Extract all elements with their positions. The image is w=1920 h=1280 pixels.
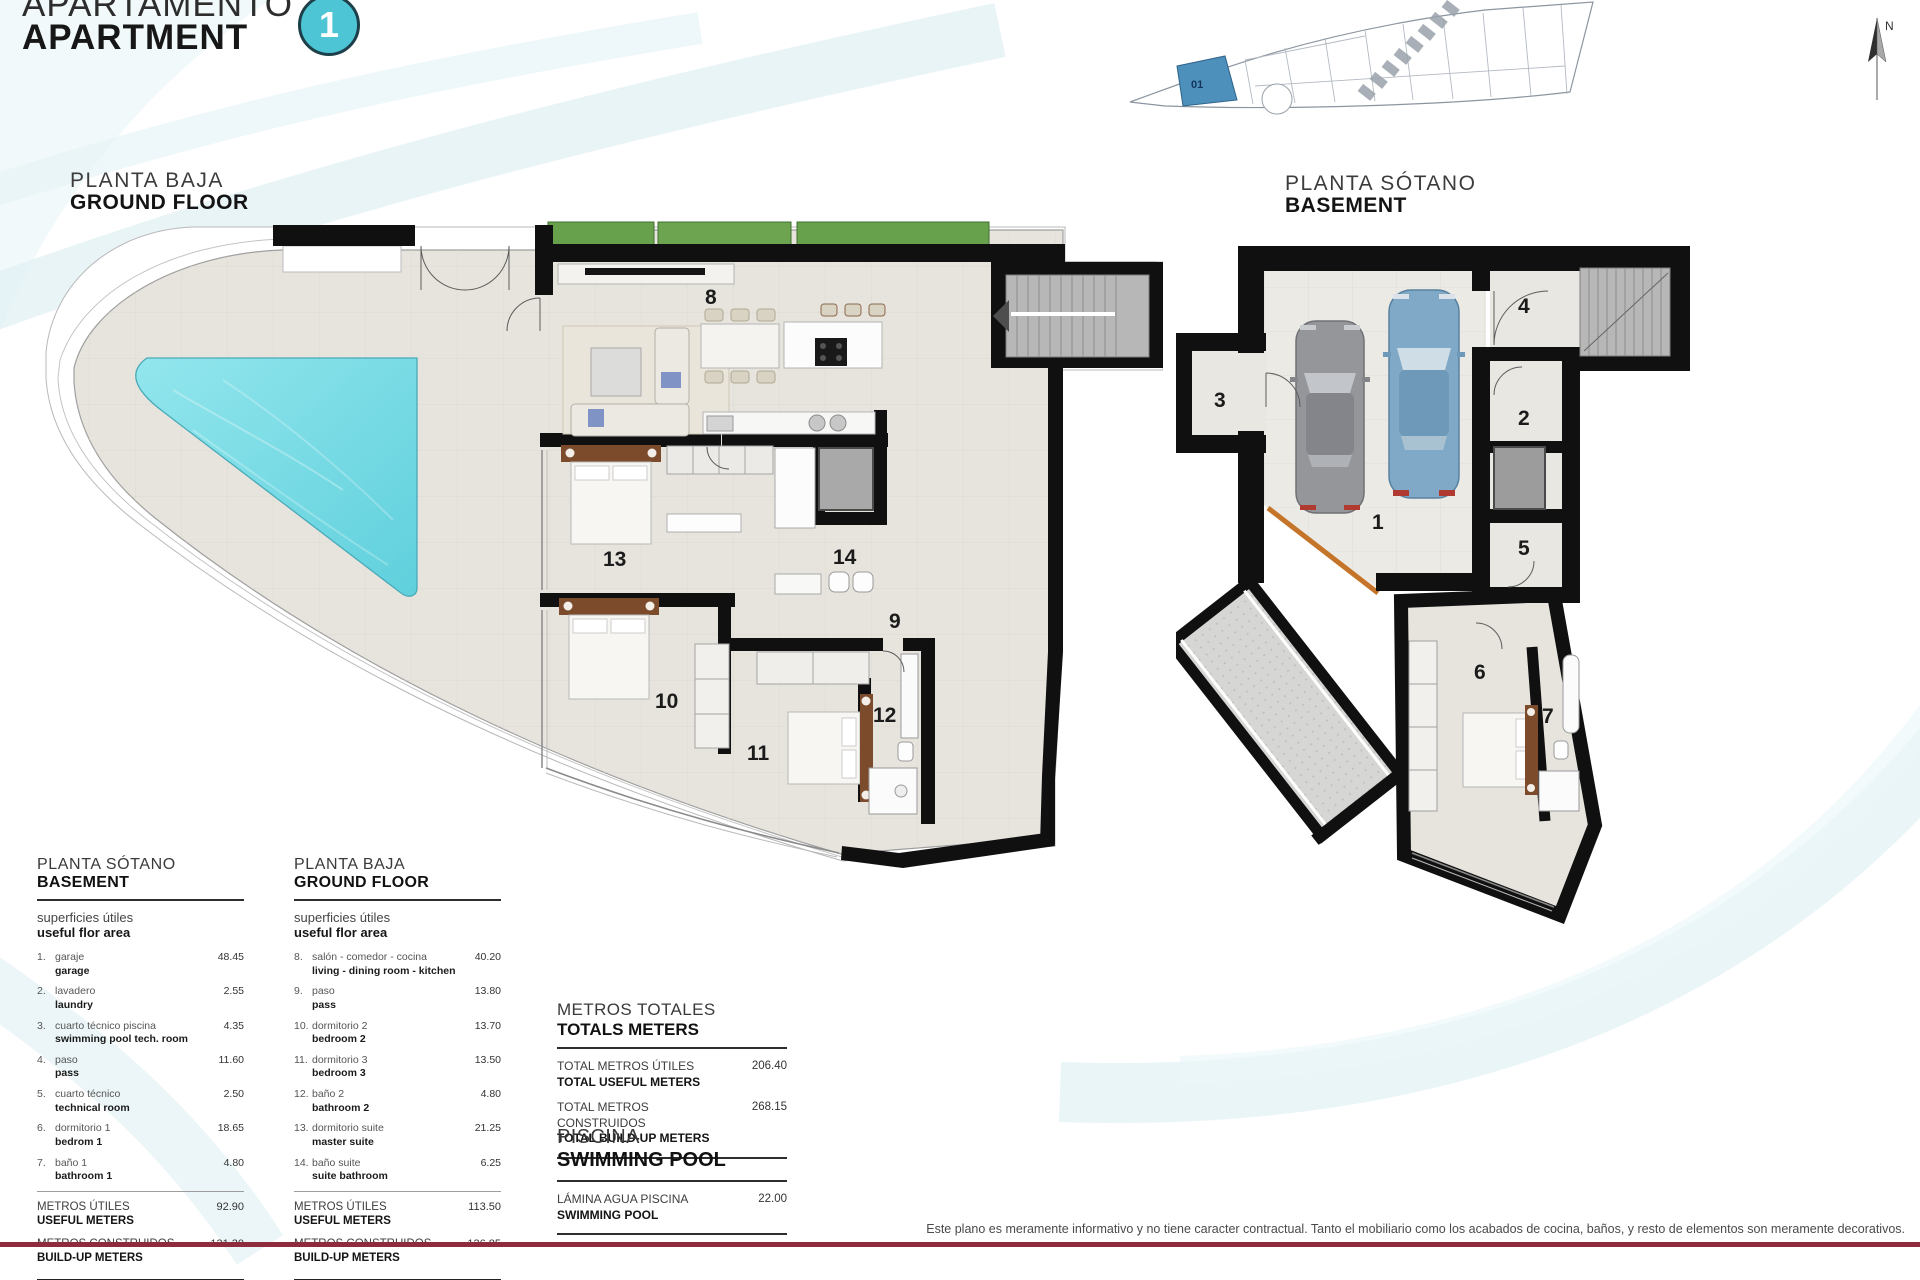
legend-row: 10.dormitorio 2bedroom 213.70 bbox=[294, 1020, 501, 1047]
staircase bbox=[1580, 268, 1670, 356]
row-en: bathroom 2 bbox=[312, 1102, 459, 1116]
room-number-7: 7 bbox=[1542, 705, 1554, 729]
elevator bbox=[1494, 447, 1545, 509]
row-value: 48.45 bbox=[202, 951, 244, 978]
row-es: baño 1 bbox=[55, 1157, 87, 1169]
room-number-10: 10 bbox=[655, 690, 678, 714]
basement-plan: 1 2 3 4 5 6 7 bbox=[1176, 243, 1896, 953]
legend-row: 14.baño suitesuite bathroom6.25 bbox=[294, 1157, 501, 1184]
row-num: 8. bbox=[294, 951, 312, 978]
disclaimer-text: Este plano es meramente informativo y no… bbox=[926, 1222, 1905, 1236]
subtitle-en: useful flor area bbox=[37, 925, 244, 941]
room-number-6: 6 bbox=[1474, 661, 1486, 685]
legend-basement-title-es: PLANTA SÓTANO bbox=[37, 856, 244, 874]
row-en: bedroom 3 bbox=[312, 1067, 459, 1081]
row-value: 2.55 bbox=[202, 985, 244, 1012]
room-number-13: 13 bbox=[603, 548, 626, 572]
row-en: pass bbox=[312, 999, 459, 1013]
row-en: living - dining room - kitchen bbox=[312, 965, 459, 979]
pool-es: LÁMINA AGUA PISCINA bbox=[557, 1192, 688, 1206]
legend-row: 3.cuarto técnico piscinaswimming pool te… bbox=[37, 1020, 244, 1047]
legend-row: 8.salón - comedor - cocinaliving - dinin… bbox=[294, 951, 501, 978]
north-label: N bbox=[1885, 19, 1894, 33]
legend-ground: PLANTA BAJA GROUND FLOOR superficies úti… bbox=[294, 856, 501, 1280]
legend-ground-title-en: GROUND FLOOR bbox=[294, 874, 501, 892]
fridge-icon bbox=[775, 448, 815, 528]
row-num: 10. bbox=[294, 1020, 312, 1047]
total-es: METROS ÚTILES bbox=[37, 1201, 130, 1213]
row-num: 14. bbox=[294, 1157, 312, 1184]
row-num: 12. bbox=[294, 1088, 312, 1115]
row-value: 18.65 bbox=[202, 1122, 244, 1149]
pool-title-es: PISCINA bbox=[557, 1126, 787, 1149]
legend-row: 1.garajegarage48.45 bbox=[37, 951, 244, 978]
legend-row: 13.dormitorio suitemaster suite21.25 bbox=[294, 1122, 501, 1149]
row-value: 2.50 bbox=[202, 1088, 244, 1115]
room3-floor bbox=[1192, 351, 1266, 437]
ground-floor-label: PLANTA BAJA GROUND FLOOR bbox=[70, 170, 249, 214]
room-number-5: 5 bbox=[1518, 537, 1530, 561]
room-number-2: 2 bbox=[1518, 407, 1530, 431]
rule bbox=[557, 1047, 787, 1049]
row-num: 4. bbox=[37, 1054, 55, 1081]
legend-row: 11.dormitorio 3bedroom 313.50 bbox=[294, 1054, 501, 1081]
row-value: 13.80 bbox=[459, 985, 501, 1012]
legend-totals: METROS ÚTILESUSEFUL METERS92.90 METROS C… bbox=[37, 1191, 244, 1280]
brochure-page: APARTAMENTO APARTMENT 1 bbox=[0, 0, 1920, 1280]
totals-title-es: METROS TOTALES bbox=[557, 1000, 787, 1020]
tv-icon bbox=[585, 268, 705, 275]
legend-row: 12.baño 2bathroom 24.80 bbox=[294, 1088, 501, 1115]
site-unit-label: 01 bbox=[1191, 79, 1203, 91]
row-en: bathroom 1 bbox=[55, 1170, 202, 1184]
total-value: 136.85 bbox=[455, 1237, 501, 1266]
row-es: dormitorio suite bbox=[312, 1122, 384, 1134]
row-value: 4.80 bbox=[202, 1157, 244, 1184]
row-es: garaje bbox=[55, 951, 84, 963]
blue-car-icon bbox=[1383, 290, 1465, 498]
subtitle-es: superficies útiles bbox=[37, 910, 244, 926]
subtitle-es: superficies útiles bbox=[294, 910, 501, 926]
total-row: METROS ÚTILESUSEFUL METERS113.50 bbox=[294, 1200, 501, 1229]
row-num: 1. bbox=[37, 951, 55, 978]
totals-row: TOTAL METROS ÚTILESTOTAL USEFUL METERS20… bbox=[557, 1059, 787, 1090]
row-num: 3. bbox=[37, 1020, 55, 1047]
bathtub-icon bbox=[1563, 655, 1579, 733]
row-en: pass bbox=[55, 1067, 202, 1081]
ground-floor-label-es: PLANTA BAJA bbox=[70, 170, 249, 192]
row-es: lavadero bbox=[55, 985, 95, 997]
legend-basement-subtitle: superficies útiles useful flor area bbox=[37, 910, 244, 941]
site-plan-drawing: 01 N bbox=[1125, 0, 1915, 130]
row-num: 7. bbox=[37, 1157, 55, 1184]
row-num: 6. bbox=[37, 1122, 55, 1149]
staircase bbox=[993, 275, 1149, 357]
totals-title-en: TOTALS METERS bbox=[557, 1020, 787, 1040]
legend-basement-title-en: BASEMENT bbox=[37, 874, 244, 892]
legend-row: 5.cuarto técnicotechnical room2.50 bbox=[37, 1088, 244, 1115]
pool-value: 22.00 bbox=[737, 1192, 787, 1223]
legend-row: 2.lavaderolaundry2.55 bbox=[37, 985, 244, 1012]
legend-totals: METROS ÚTILESUSEFUL METERS113.50 METROS … bbox=[294, 1191, 501, 1280]
site-drive-notch bbox=[1262, 84, 1292, 114]
dining-set bbox=[701, 309, 779, 383]
basement-label: PLANTA SÓTANO BASEMENT bbox=[1285, 173, 1476, 217]
legend-ground-title-es: PLANTA BAJA bbox=[294, 856, 501, 874]
gray-car-icon bbox=[1290, 321, 1370, 513]
row-value: 40.20 bbox=[459, 951, 501, 978]
footer-divider-line bbox=[0, 1242, 1920, 1247]
legend-row: 6.dormitorio 1bedrom 118.65 bbox=[37, 1122, 244, 1149]
row-en: laundry bbox=[55, 999, 202, 1013]
row-es: baño 2 bbox=[312, 1088, 344, 1100]
entry-niche bbox=[283, 246, 401, 272]
total-en: USEFUL METERS bbox=[37, 1214, 198, 1228]
row-value: 4.80 bbox=[459, 1088, 501, 1115]
total-es: METROS ÚTILES bbox=[294, 1201, 387, 1213]
rule bbox=[294, 899, 501, 901]
basement-drawing bbox=[1176, 243, 1896, 953]
north-compass-icon: N bbox=[1868, 18, 1894, 100]
legend-row: 4.pasopass11.60 bbox=[37, 1054, 244, 1081]
rule bbox=[37, 899, 244, 901]
garage-ramp bbox=[1176, 577, 1410, 845]
row-en: bedrom 1 bbox=[55, 1136, 202, 1150]
row-en: master suite bbox=[312, 1136, 459, 1150]
row-en: bedroom 2 bbox=[312, 1033, 459, 1047]
room-number-3: 3 bbox=[1214, 389, 1226, 413]
row-es: dormitorio 2 bbox=[312, 1020, 367, 1032]
swimming-pool-block: PISCINA SWIMMING POOL LÁMINA AGUA PISCIN… bbox=[557, 1126, 787, 1245]
row-value: 21.25 bbox=[459, 1122, 501, 1149]
row-en: suite bathroom bbox=[312, 1170, 459, 1184]
legend-basement: PLANTA SÓTANO BASEMENT superficies útile… bbox=[37, 856, 244, 1280]
row-es: dormitorio 1 bbox=[55, 1122, 110, 1134]
total-row: METROS CONSTRUIDOSBUILD-UP METERS136.85 bbox=[294, 1237, 501, 1266]
row-value: 13.70 bbox=[459, 1020, 501, 1047]
row-es: paso bbox=[312, 985, 335, 997]
row-en: swimming pool tech. room bbox=[55, 1033, 202, 1047]
room-number-4: 4 bbox=[1518, 295, 1530, 319]
row-es: cuarto técnico piscina bbox=[55, 1020, 156, 1032]
row-value: 11.60 bbox=[202, 1054, 244, 1081]
site-locator-plan: 01 N bbox=[1125, 0, 1915, 130]
elevator bbox=[819, 448, 873, 510]
room-number-9: 9 bbox=[889, 610, 901, 634]
row-en: technical room bbox=[55, 1102, 202, 1116]
legend-row: 7.baño 1bathroom 14.80 bbox=[37, 1157, 244, 1184]
row-es: cuarto técnico bbox=[55, 1088, 120, 1100]
row-es: paso bbox=[55, 1054, 78, 1066]
subtitle-en: useful flor area bbox=[294, 925, 501, 941]
total-en: BUILD-UP METERS bbox=[37, 1251, 198, 1265]
legend-row: 9.pasopass13.80 bbox=[294, 985, 501, 1012]
rule bbox=[557, 1233, 787, 1235]
room-number-11: 11 bbox=[747, 742, 769, 766]
row-num: 5. bbox=[37, 1088, 55, 1115]
bedroom-block bbox=[1401, 595, 1595, 915]
row-es: salón - comedor - cocina bbox=[312, 951, 427, 963]
total-value: 113.50 bbox=[455, 1200, 501, 1229]
ground-floor-label-en: GROUND FLOOR bbox=[70, 192, 249, 214]
pool-row: LÁMINA AGUA PISCINASWIMMING POOL22.00 bbox=[557, 1192, 787, 1223]
totals-value: 206.40 bbox=[737, 1059, 787, 1090]
total-value: 131.30 bbox=[198, 1237, 244, 1266]
rule bbox=[557, 1180, 787, 1182]
pool-title-en: SWIMMING POOL bbox=[557, 1149, 787, 1172]
total-row: METROS CONSTRUIDOSBUILD-UP METERS131.30 bbox=[37, 1237, 244, 1266]
row-value: 6.25 bbox=[459, 1157, 501, 1184]
total-row: METROS ÚTILESUSEFUL METERS92.90 bbox=[37, 1200, 244, 1229]
row-num: 2. bbox=[37, 985, 55, 1012]
row-num: 9. bbox=[294, 985, 312, 1012]
legend-ground-subtitle: superficies útiles useful flor area bbox=[294, 910, 501, 941]
totals-es: TOTAL METROS ÚTILES bbox=[557, 1059, 694, 1073]
row-es: baño suite bbox=[312, 1157, 360, 1169]
row-num: 11. bbox=[294, 1054, 312, 1081]
total-en: BUILD-UP METERS bbox=[294, 1251, 455, 1265]
row-num: 13. bbox=[294, 1122, 312, 1149]
total-en: USEFUL METERS bbox=[294, 1214, 455, 1228]
room-number-12: 12 bbox=[873, 704, 896, 728]
basement-label-es: PLANTA SÓTANO bbox=[1285, 173, 1476, 195]
total-value: 92.90 bbox=[198, 1200, 244, 1229]
room-number-14: 14 bbox=[833, 546, 856, 570]
page-title: APARTAMENTO APARTMENT bbox=[22, 0, 293, 55]
totals-en: TOTAL USEFUL METERS bbox=[557, 1075, 737, 1091]
highlighted-unit-01 bbox=[1177, 56, 1237, 106]
page-title-en: APARTMENT bbox=[22, 21, 293, 54]
row-value: 4.35 bbox=[202, 1020, 244, 1047]
room-number-1: 1 bbox=[1372, 511, 1384, 535]
room-number-8: 8 bbox=[705, 286, 717, 310]
row-value: 13.50 bbox=[459, 1054, 501, 1081]
row-en: garage bbox=[55, 965, 202, 979]
ground-floor-drawing bbox=[43, 220, 1163, 870]
ground-floor-plan: 8 9 10 11 12 13 14 bbox=[43, 220, 1163, 870]
basement-label-en: BASEMENT bbox=[1285, 195, 1476, 217]
row-es: dormitorio 3 bbox=[312, 1054, 367, 1066]
pool-en: SWIMMING POOL bbox=[557, 1208, 737, 1224]
